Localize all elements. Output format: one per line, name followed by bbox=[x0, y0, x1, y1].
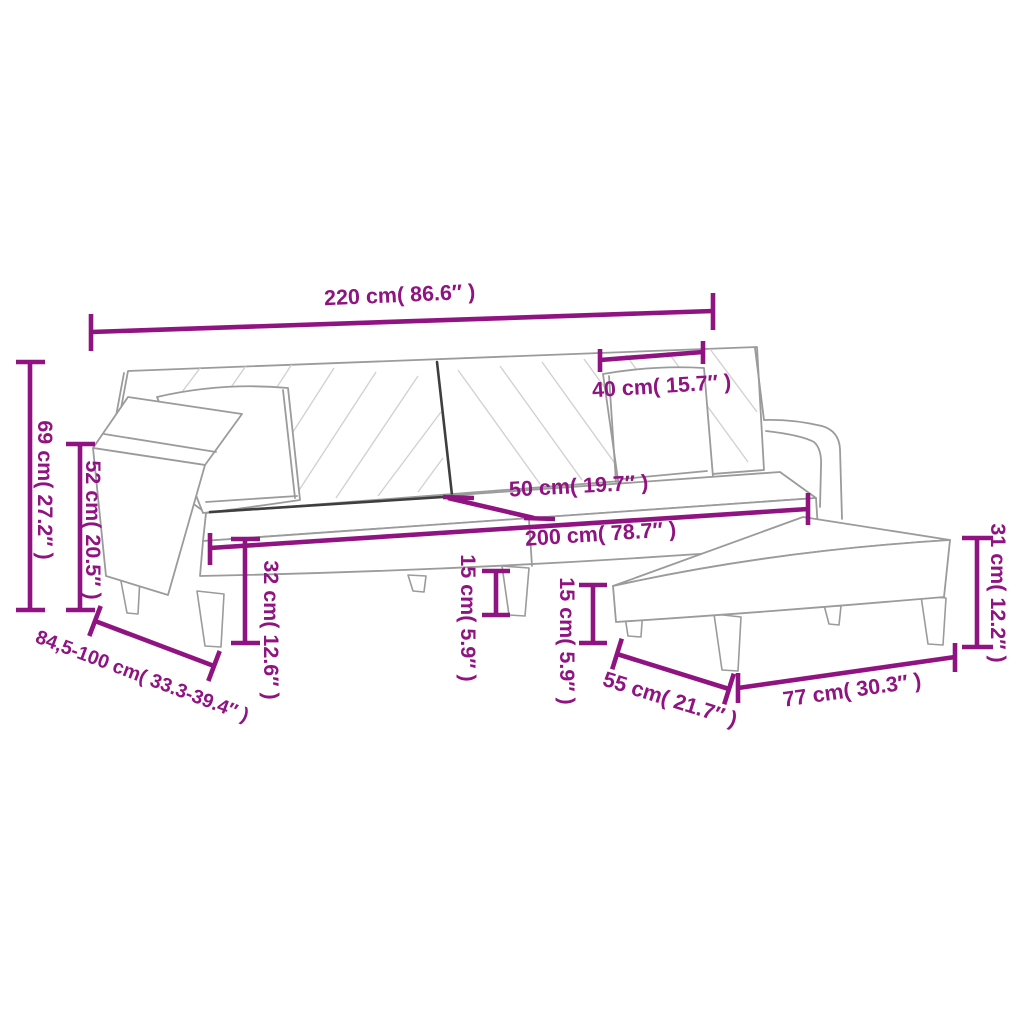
dim-armrest-height: 52 cm( 20.5″ ) bbox=[66, 444, 105, 610]
dim-label-back-height: 69 cm( 27.2″ ) bbox=[33, 420, 57, 559]
dim-footstool-leg-height: 15 cm( 5.9″ ) bbox=[555, 577, 607, 704]
dim-label-overall-width: 220 cm( 86.6″ ) bbox=[324, 280, 476, 311]
dim-footstool-height: 31 cm( 12.2″ ) bbox=[962, 523, 1010, 662]
dim-label-footstool-depth: 55 cm( 21.7″ ) bbox=[600, 667, 740, 732]
dim-label-footstool-width: 77 cm( 30.3″ ) bbox=[781, 668, 922, 711]
footstool-leg bbox=[714, 614, 741, 671]
footstool-leg bbox=[921, 596, 946, 645]
sofa-leg bbox=[197, 591, 224, 647]
sofa-dimension-diagram: 220 cm( 86.6″ ) 40 cm( 15.7″ ) 69 cm( 27… bbox=[0, 0, 1024, 1024]
dim-label-sofa-leg-height: 15 cm( 5.9″ ) bbox=[456, 554, 480, 681]
dim-label-footstool-height: 31 cm( 12.2″ ) bbox=[986, 523, 1010, 662]
footstool-leg bbox=[824, 605, 841, 625]
dim-sofa-leg-height: 15 cm( 5.9″ ) bbox=[456, 554, 510, 681]
diagram-canvas: 220 cm( 86.6″ ) 40 cm( 15.7″ ) 69 cm( 27… bbox=[0, 0, 1024, 1024]
dim-overall-width: 220 cm( 86.6″ ) bbox=[91, 280, 713, 351]
dim-label-seat-height: 32 cm( 12.6″ ) bbox=[259, 560, 283, 699]
left-armrest-front bbox=[93, 448, 205, 595]
dim-footstool-width: 77 cm( 30.3″ ) bbox=[738, 643, 955, 712]
dim-label-footstool-leg-height: 15 cm( 5.9″ ) bbox=[555, 577, 579, 704]
dim-label-armrest-height: 52 cm( 20.5″ ) bbox=[81, 460, 105, 599]
sofa-leg bbox=[408, 575, 426, 592]
sofa-leg bbox=[502, 566, 529, 616]
dim-back-height: 69 cm( 27.2″ ) bbox=[16, 362, 57, 610]
